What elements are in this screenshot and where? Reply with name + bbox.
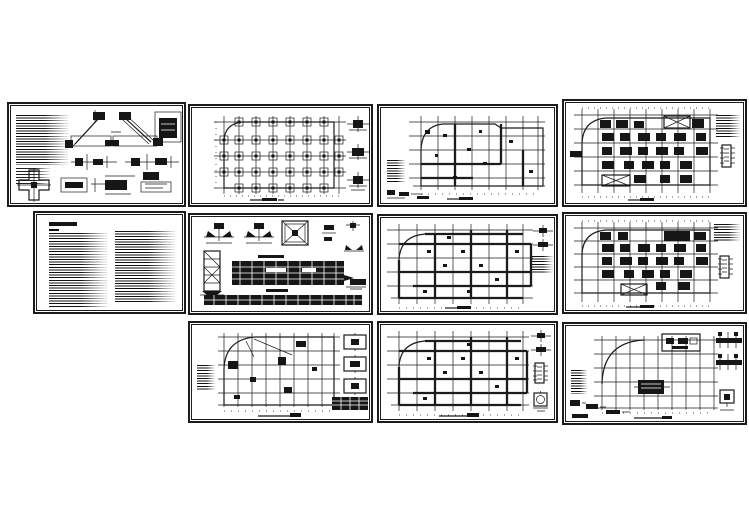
sheet-11-upper-roof-plan: [562, 322, 747, 425]
sheet-08-slab-plan: [562, 212, 747, 314]
sheet-02-frame: [191, 107, 370, 204]
left-wing-detail: [570, 151, 582, 157]
notes-column-2: [115, 231, 175, 303]
building-outline: [399, 341, 425, 367]
small-detail-bottom-right: [720, 390, 734, 410]
building-outline: [224, 337, 334, 405]
roof-elements: [228, 341, 317, 399]
small-details-right: [322, 221, 364, 251]
sheet-03-frame: [380, 107, 555, 204]
sheet-01-drawing: [13, 108, 183, 204]
small-details-bottom-left: [570, 400, 630, 418]
sheet-04-drawing: [568, 105, 744, 204]
beam-tags: [425, 130, 533, 179]
cad-sheet-collage: [0, 0, 749, 530]
sheet-10-beam-plan: [377, 321, 558, 423]
beam-section-right-2: [716, 354, 742, 370]
pile-cap-detail-3: [347, 172, 369, 190]
title-mark: [628, 198, 654, 201]
thick-beams: [399, 230, 531, 298]
sheet-08-drawing: [568, 218, 744, 311]
sheet-03-floor-framing-plan: [377, 104, 558, 207]
sheet-01-structural-details: [7, 102, 186, 207]
notes-subtitle: [49, 229, 59, 231]
title-mark: [250, 198, 284, 201]
sheet-04-frame: [565, 102, 744, 204]
diagonal-line: [246, 339, 292, 357]
sheet-04-slab-plan: [562, 99, 747, 207]
cap-detail-right-2: [533, 239, 553, 251]
cross-column-section: [17, 168, 51, 202]
sheet-03-drawing: [383, 110, 555, 204]
schedule-ladder-detail: [720, 145, 735, 167]
sheet-06-pile-details: [188, 213, 373, 315]
sheet-05-frame: [36, 214, 183, 311]
title-mark: [439, 413, 479, 417]
sheet-05-general-notes: [33, 211, 186, 314]
sheet-09-roof-plan: [188, 321, 373, 423]
section-detail-2: [344, 355, 366, 373]
beam-detail-mid-2: [125, 154, 179, 170]
sheet-10-frame: [380, 324, 555, 420]
cap-plan-crossed: [282, 221, 308, 245]
grid-lines: [387, 224, 533, 308]
title-mark: [445, 306, 471, 309]
thick-beams: [399, 337, 527, 405]
beam-section-right-1: [716, 332, 742, 348]
pile-cap-detail-1: [347, 116, 369, 132]
column-detail-right: [155, 112, 181, 142]
notes-column-1: [49, 233, 107, 307]
sheet-08-frame: [565, 215, 744, 311]
beam-detail-mid-1: [71, 154, 117, 170]
building-outline: [399, 234, 425, 260]
cap-detail-right-1: [533, 225, 553, 237]
sheet-06-drawing: [194, 219, 371, 313]
round-detail-bottom-right: [533, 391, 548, 411]
detail-bottom-3: [141, 172, 171, 192]
building-outline: [602, 340, 644, 384]
sheet-10-drawing: [383, 327, 555, 421]
pile-schedule-table: [232, 255, 344, 285]
sheet-02-drawing: [194, 110, 371, 205]
title-mark: [626, 305, 654, 308]
grid-lines: [218, 333, 340, 411]
pile-cap-detail-2: [347, 144, 369, 160]
sheet-09-frame: [191, 324, 370, 420]
long-schedule-table: [204, 289, 362, 305]
slab-panels: [600, 231, 708, 290]
cap-detail-2: [244, 223, 274, 243]
stair-bulkhead: [662, 334, 700, 351]
pile-elevation: [200, 251, 224, 299]
sheet-09-drawing: [194, 327, 371, 421]
section-detail-3: [344, 377, 366, 395]
small-details-bottom-left: [387, 190, 429, 199]
cap-detail-right-1: [531, 330, 551, 342]
sheet-02-foundation-plan: [188, 104, 373, 207]
detail-bottom-1: [61, 178, 105, 192]
detail-lower-right: [344, 275, 366, 289]
title-mark: [634, 416, 672, 419]
cap-detail-right-2: [531, 344, 551, 356]
sheet-11-frame: [565, 325, 744, 422]
dark-table: [332, 397, 368, 410]
section-detail-1: [344, 333, 366, 351]
pad-footings: [220, 118, 343, 192]
schedule-ladder-detail: [718, 256, 733, 278]
cap-detail-1: [204, 223, 234, 243]
notes-title: [49, 222, 77, 226]
sheet-11-drawing: [568, 328, 744, 423]
title-mark: [447, 197, 473, 200]
building-outline: [421, 124, 543, 186]
title-mark: [258, 413, 301, 417]
sheet-06-frame: [191, 216, 370, 312]
schedule-ladder-detail: [533, 363, 548, 383]
slab-panels: [600, 119, 708, 183]
crossed-opening-bottom: [602, 175, 630, 186]
sheet-07-frame: [380, 217, 555, 312]
sheet-07-beam-plan: [377, 214, 558, 315]
sheet-01-frame: [10, 105, 183, 204]
detail-bottom-2: [105, 176, 135, 194]
sheet-07-drawing: [383, 220, 555, 312]
